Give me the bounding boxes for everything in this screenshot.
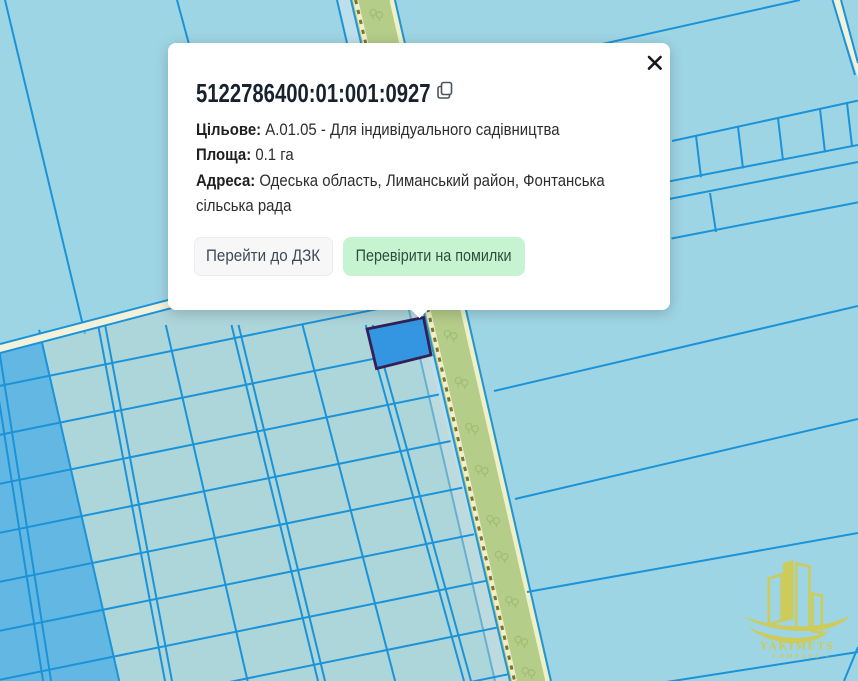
svg-text:YAKIMETS: YAKIMETS <box>760 641 834 653</box>
svg-text:- COMPANY -: - COMPANY - <box>763 653 830 660</box>
